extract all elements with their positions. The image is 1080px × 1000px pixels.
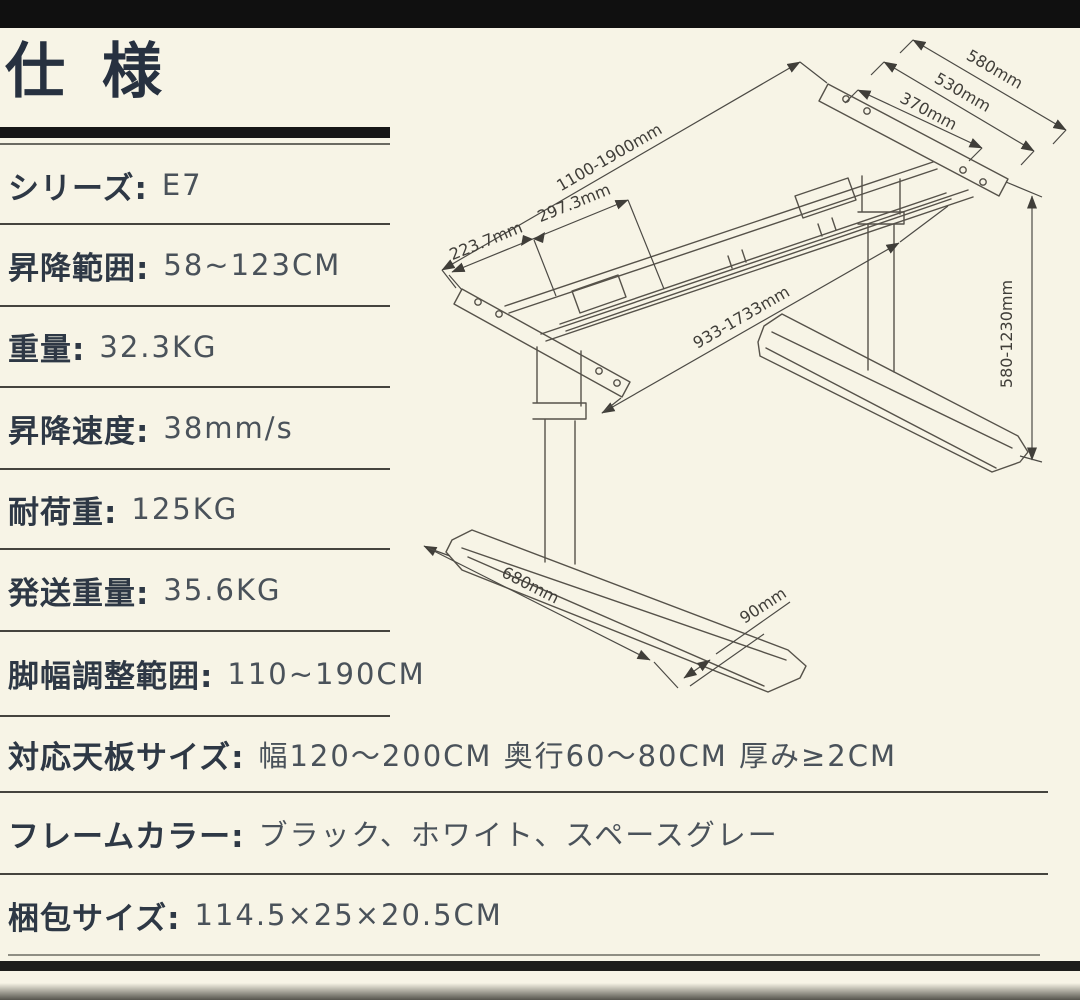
- spec-row-series: シリーズ: E7: [0, 147, 390, 225]
- spec-label: 発送重量:: [8, 568, 149, 613]
- bottom-rule-thin: [8, 954, 1040, 956]
- spec-row-load: 耐荷重: 125KG: [0, 470, 390, 550]
- dim-foot-length: 680mm: [499, 563, 563, 608]
- spec-row-tabletop-size: 対応天板サイズ: 幅120～200CM 奥行60～80CM 厚み≥2CM: [0, 717, 1048, 793]
- dim-top-580: 580mm: [963, 46, 1026, 93]
- spec-value: 38mm/s: [163, 411, 293, 445]
- desk-frame-diagram: 1100-1900mm 223.7mm 297.3mm 933-1733mm 5…: [385, 25, 1080, 725]
- spec-label: 脚幅調整範囲:: [8, 651, 213, 696]
- bottom-edge-shadow: [0, 983, 1080, 1000]
- chain-arrow-left: [521, 235, 533, 246]
- top-black-bar: [0, 0, 1080, 28]
- dimension-lines: [424, 40, 1066, 688]
- desk-frame-drawing: 1100-1900mm 223.7mm 297.3mm 933-1733mm 5…: [385, 25, 1080, 725]
- spec-value: 125KG: [131, 492, 238, 526]
- spec-value: 114.5×25×20.5CM: [194, 898, 502, 932]
- spec-row-weight: 重量: 32.3KG: [0, 307, 390, 388]
- spec-row-frame-color: フレームカラー: ブラック、ホワイト、スペースグレー: [0, 793, 1048, 875]
- spec-row-leg-width: 脚幅調整範囲: 110~190CM: [0, 632, 390, 717]
- spec-label: 対応天板サイズ:: [8, 732, 244, 777]
- dim-height-range: 580-1230mm: [997, 280, 1016, 388]
- page-title: 仕 様: [5, 42, 170, 102]
- spec-value: 35.6KG: [163, 573, 281, 607]
- spec-value: 幅120～200CM 奥行60～80CM 厚み≥2CM: [258, 733, 897, 775]
- spec-label: 重量:: [8, 324, 85, 369]
- bottom-rule-thick: [0, 961, 1080, 971]
- spec-value: 58~123CM: [163, 248, 341, 282]
- spec-label: 昇降速度:: [8, 406, 149, 451]
- title-underline-thin: [0, 143, 390, 145]
- spec-value: ブラック、ホワイト、スペースグレー: [258, 812, 778, 854]
- spec-label: フレームカラー:: [8, 811, 244, 856]
- spec-row-speed: 昇降速度: 38mm/s: [0, 388, 390, 470]
- spec-label: シリーズ:: [8, 163, 148, 208]
- spec-label: 昇降範囲:: [8, 243, 149, 288]
- spec-value: 32.3KG: [99, 330, 217, 364]
- spec-label: 耐荷重:: [8, 487, 117, 532]
- spec-row-height-range: 昇降範囲: 58~123CM: [0, 225, 390, 307]
- title-underline-thick: [0, 127, 390, 138]
- spec-value: E7: [162, 168, 203, 202]
- spec-row-ship-weight: 発送重量: 35.6KG: [0, 550, 390, 632]
- spec-row-package-size: 梱包サイズ: 114.5×25×20.5CM: [0, 875, 1048, 955]
- dim-length-range: 1100-1900mm: [553, 119, 665, 195]
- spec-sheet: 仕 様 シリーズ: E7 昇降範囲: 58~123CM 重量: 32.3KG 昇…: [0, 0, 1080, 1000]
- dim-seg-223: 223.7mm: [447, 218, 525, 264]
- spec-label: 梱包サイズ:: [8, 893, 180, 938]
